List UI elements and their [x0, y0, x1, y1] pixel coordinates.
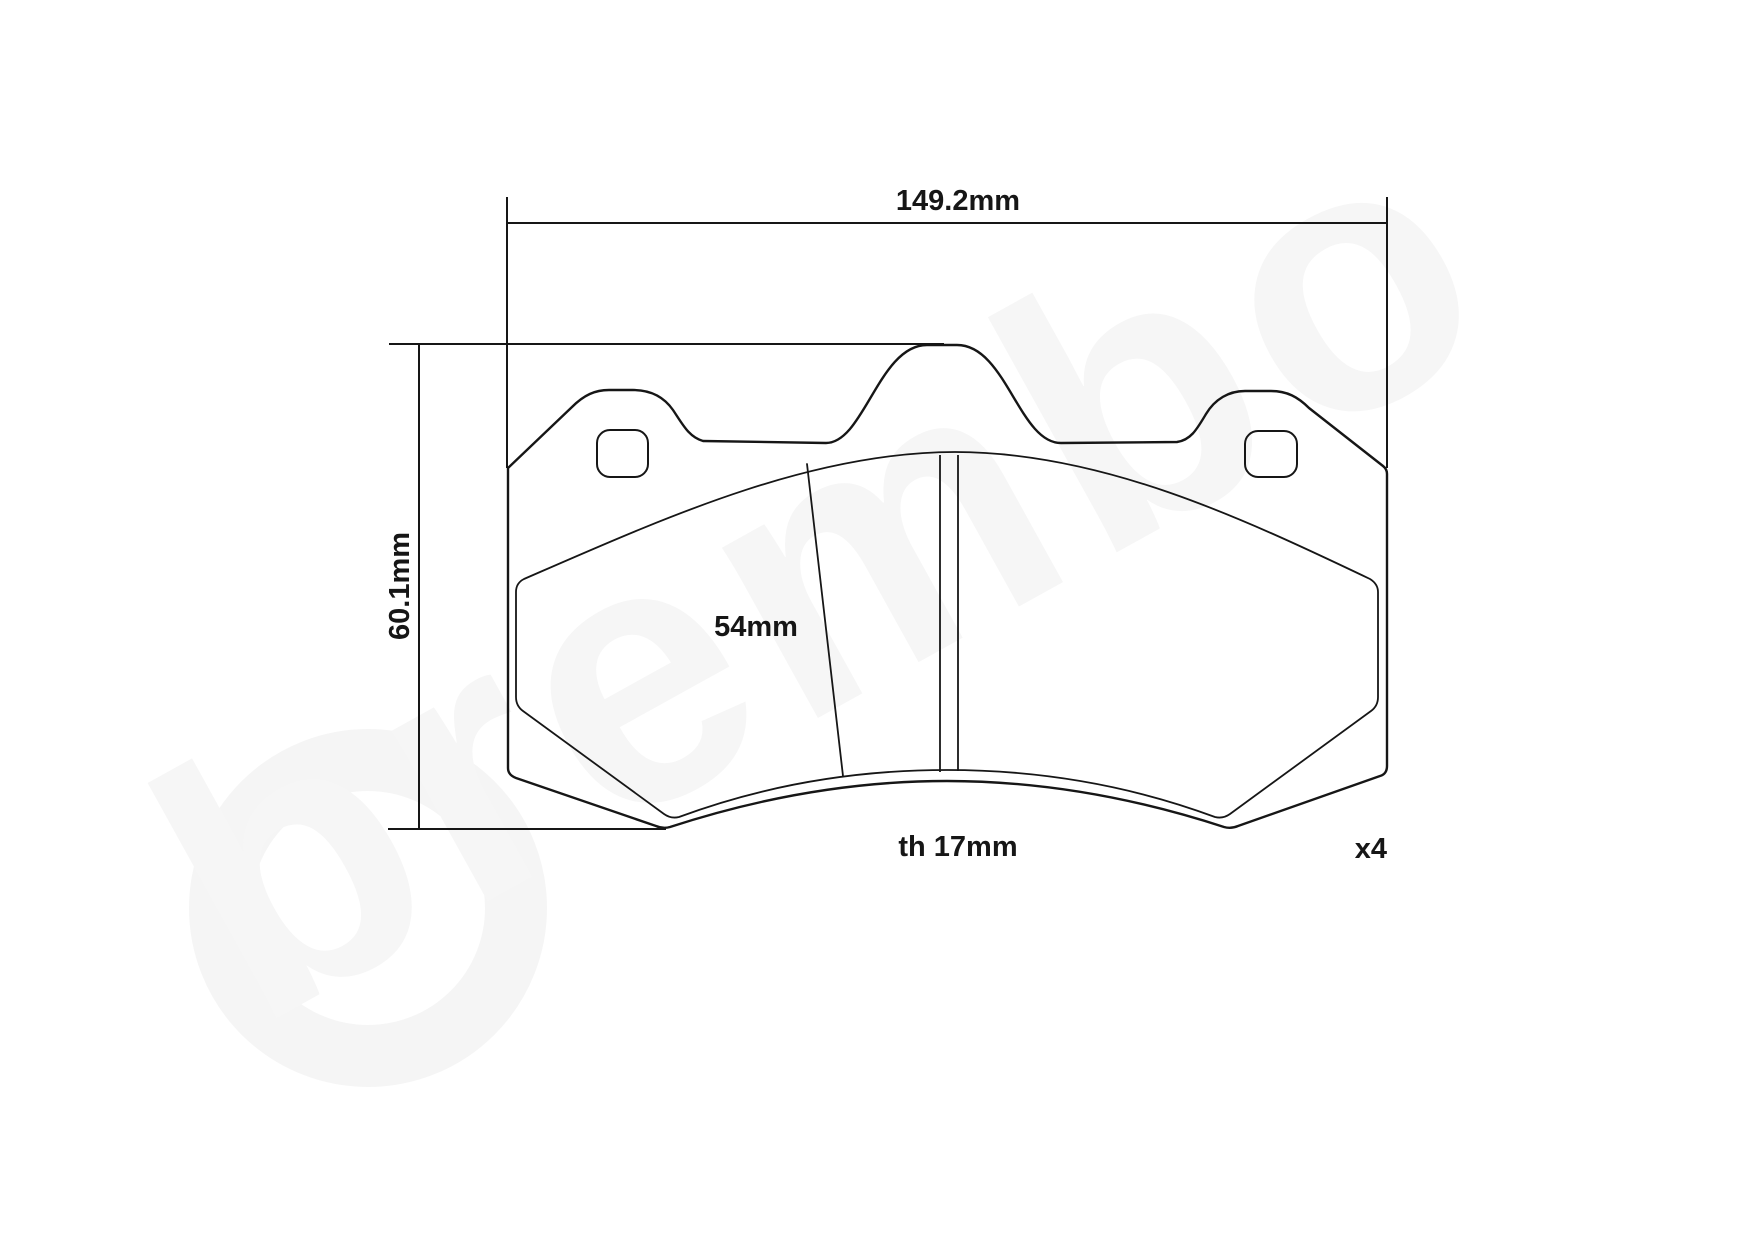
technical-drawing-page: brembo 149.2mm 60.1mm 54 — [0, 0, 1753, 1240]
height-dimension-label: 60.1mm — [384, 532, 416, 640]
brake-pad-drawing: brembo 149.2mm 60.1mm 54 — [0, 0, 1753, 1240]
quantity-label: x4 — [1355, 833, 1387, 865]
pad-height-label: 54mm — [714, 611, 798, 643]
brembo-watermark: brembo — [93, 39, 1553, 1099]
width-dimension-label: 149.2mm — [896, 185, 1020, 217]
watermark-wordmark: brembo — [93, 39, 1553, 1099]
thickness-label: th 17mm — [898, 831, 1017, 863]
